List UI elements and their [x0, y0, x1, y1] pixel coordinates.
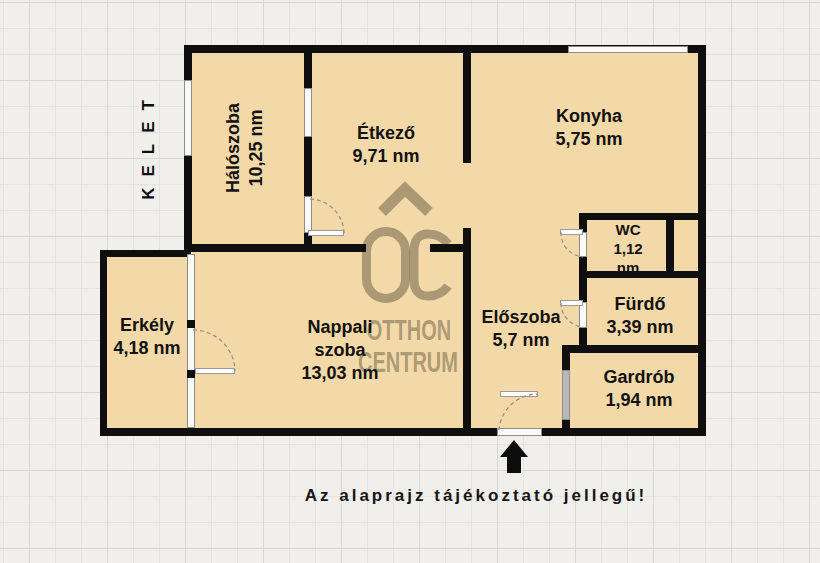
room-name: Fürdő	[606, 293, 673, 316]
room-area: 5,75 nm	[555, 128, 622, 151]
room-label-furdo: Fürdő 3,39 nm	[606, 293, 673, 339]
door-swing-arcs	[0, 0, 820, 563]
room-area: 1,12	[613, 239, 642, 258]
footer-note: Az alaprajz tájékoztató jellegű!	[305, 486, 648, 506]
room-label-etkezo: Étkező 9,71 nm	[352, 122, 419, 168]
room-area: 9,71 nm	[352, 145, 419, 168]
room-name: WC	[613, 220, 642, 239]
room-name: Erkély	[113, 314, 180, 337]
door-swing-bathroom-arc	[561, 303, 583, 327]
room-area: 5,7 nm	[481, 329, 560, 352]
room-label-erkely: Erkély 4,18 nm	[113, 314, 180, 360]
door-swing-balcony-arc	[193, 330, 235, 371]
room-label-nappali: Nappali szoba 13,03 nm	[301, 316, 378, 385]
room-label-konyha: Konyha 5,75 nm	[555, 105, 622, 151]
room-area: 3,39 nm	[606, 316, 673, 339]
room-name-line2: szoba	[301, 339, 378, 362]
door-swing-bedroom-arc	[310, 199, 344, 233]
room-area: 1,94 nm	[603, 389, 674, 412]
room-name: Előszoba	[481, 306, 560, 329]
room-label-haloszoba: Hálószoba 10,25 nm	[222, 103, 268, 193]
room-name: Hálószoba	[222, 103, 245, 193]
room-area: 13,03 nm	[301, 362, 378, 385]
door-swing-entrance-arc	[499, 394, 538, 430]
room-name: Gardrób	[603, 366, 674, 389]
room-name: Nappali	[301, 316, 378, 339]
room-label-wc: WC 1,12 nm	[613, 220, 642, 277]
entrance-arrow-icon	[500, 440, 528, 457]
entrance-arrow-stem	[507, 456, 521, 473]
room-label-eloszoba: Előszoba 5,7 nm	[481, 306, 560, 352]
room-name: Étkező	[352, 122, 419, 145]
door-swing-wc-arc	[561, 232, 583, 257]
room-name: Konyha	[555, 105, 622, 128]
room-area-unit: nm	[613, 258, 642, 277]
room-area: 10,25 nm	[245, 103, 268, 193]
compass-label-east: KELET	[139, 89, 159, 211]
floorplan-canvas: OTTHON CENTRUM KELET Hál	[0, 0, 820, 563]
room-area: 4,18 nm	[113, 337, 180, 360]
room-label-gardrob: Gardrób 1,94 nm	[603, 366, 674, 412]
